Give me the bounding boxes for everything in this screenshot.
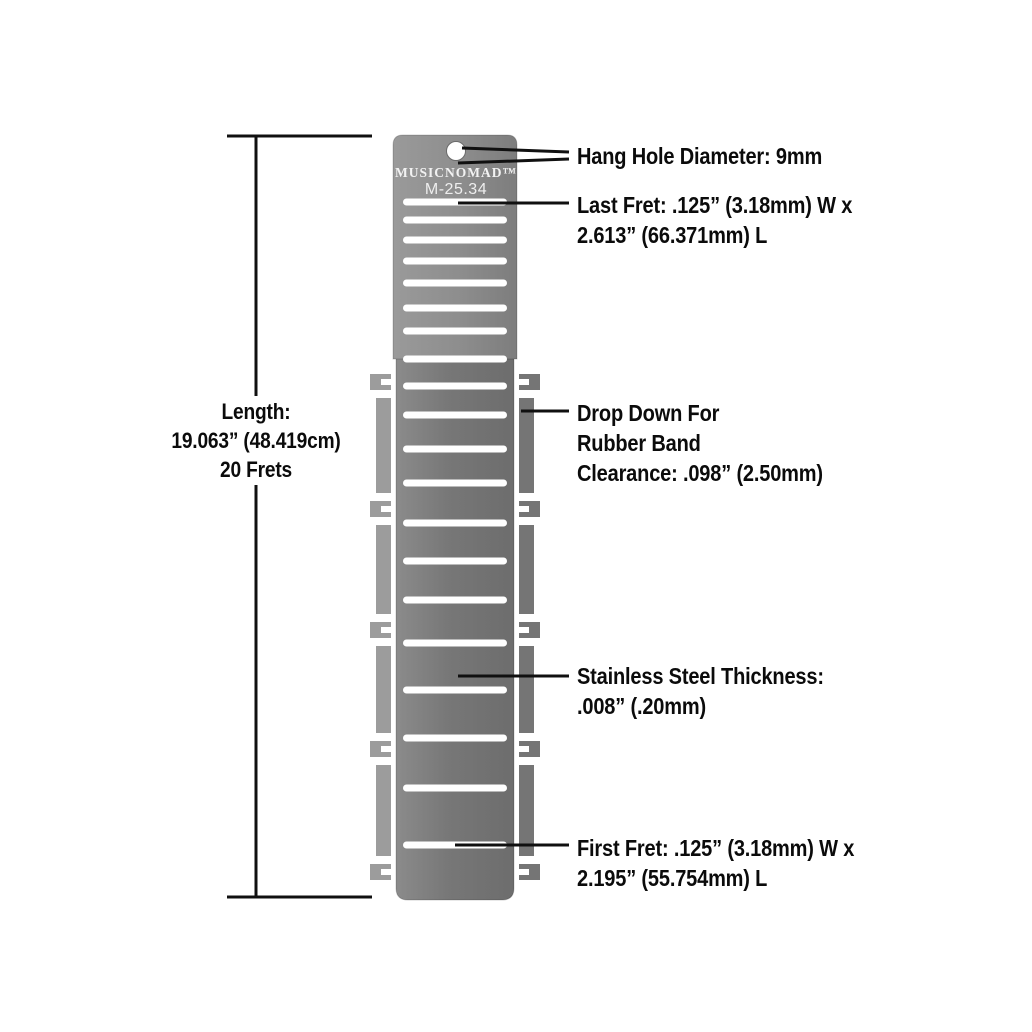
wing-notch-cut [373,856,393,864]
wing-notch-cut [517,390,537,398]
wing-notch-cut [373,366,393,374]
fret-slot [403,480,507,487]
hang-hole [447,142,466,161]
wing-notch-cut [517,757,537,765]
fret-slot [403,597,507,604]
fret-slot [403,280,507,287]
model-number-text: M-25.34 [425,181,487,198]
tool-left-wing [370,366,393,888]
wing-notch-cut [517,517,537,525]
wing-notch-cut [517,614,537,622]
wing-notch-cut [517,493,537,501]
label-length-dimension: Length: 19.063” (48.419cm) 20 Frets [150,396,362,485]
wing-tab-notch [519,746,529,752]
fret-slot [403,558,507,565]
label-steel-thickness: Stainless Steel Thickness: .008” (.20mm) [577,661,824,721]
tool-main-plate [396,358,514,900]
label-line: Rubber Band [577,428,823,458]
wing-notch-cut [517,856,537,864]
fret-slot [403,383,507,390]
fret-slot [403,640,507,647]
wing-notch-cut [373,733,393,741]
label-line: 2.613” (66.371mm) L [577,220,852,250]
label-hang-hole: Hang Hole Diameter: 9mm [577,141,822,171]
fret-slot [403,735,507,742]
wing-tab-notch [381,869,391,875]
wing-notch-cut [373,757,393,765]
label-line: .008” (.20mm) [577,691,824,721]
label-line: Clearance: .098” (2.50mm) [577,458,823,488]
wing-notch-cut [373,638,393,646]
wing-tab-notch [381,746,391,752]
wing-notch-cut [373,517,393,525]
tool-right-wing [517,366,540,888]
wing-notch-cut [517,366,537,374]
fret-slot [403,842,507,849]
fret-slot [403,520,507,527]
wing-tab-notch [381,506,391,512]
label-line: 20 Frets [150,455,362,484]
label-line: Length: [150,397,362,426]
wing-notch-cut [517,733,537,741]
label-line: 2.195” (55.754mm) L [577,863,854,893]
wing-notch-cut [517,638,537,646]
wing-tab-notch [381,627,391,633]
fret-slot [403,687,507,694]
fret-slot [403,237,507,244]
label-last-fret: Last Fret: .125” (3.18mm) W x 2.613” (66… [577,190,852,250]
wing-tab-notch [519,869,529,875]
wing-tab-notch [519,379,529,385]
fret-slot [403,446,507,453]
label-line: Drop Down For [577,398,823,428]
wing-notch-cut [373,614,393,622]
label-line: Stainless Steel Thickness: [577,661,824,691]
wing-notch-cut [373,390,393,398]
fret-slot [403,305,507,312]
label-first-fret: First Fret: .125” (3.18mm) W x 2.195” (5… [577,833,854,893]
fret-slot [403,199,507,206]
fret-slot [403,412,507,419]
fret-slot [403,785,507,792]
wing-notch-cut [517,880,537,888]
fret-slot [403,328,507,335]
brand-logo-text: MUSICNOMAD™ [395,165,517,180]
wing-notch-cut [373,493,393,501]
label-drop-down: Drop Down For Rubber Band Clearance: .09… [577,398,823,488]
label-line: Hang Hole Diameter: 9mm [577,141,822,171]
product-diagram: MUSICNOMAD™ M-25.34 Length: 19.063” (48.… [0,0,1032,1032]
fret-slot [403,217,507,224]
fret-slot [403,356,507,363]
wing-notch-cut [373,880,393,888]
fret-shield-tool: MUSICNOMAD™ M-25.34 [355,120,550,915]
wing-tab-notch [381,379,391,385]
wing-tab-notch [519,627,529,633]
label-line: Last Fret: .125” (3.18mm) W x [577,190,852,220]
fret-slot [403,258,507,265]
label-line: 19.063” (48.419cm) [150,426,362,455]
wing-tab-notch [519,506,529,512]
label-line: First Fret: .125” (3.18mm) W x [577,833,854,863]
